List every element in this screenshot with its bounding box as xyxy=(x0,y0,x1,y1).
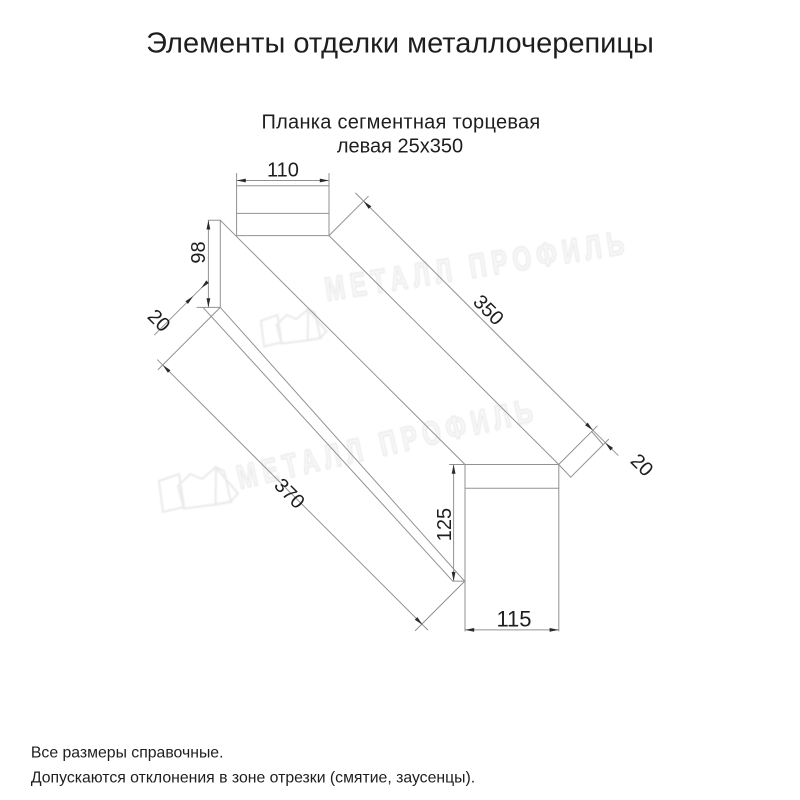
svg-text:110: 110 xyxy=(267,160,299,182)
svg-text:Допускаются отклонения в зоне: Допускаются отклонения в зоне отрезки (с… xyxy=(31,770,475,787)
svg-text:Планка сегментная торцевая: Планка сегментная торцевая xyxy=(261,112,540,134)
svg-text:20: 20 xyxy=(143,305,174,336)
svg-text:20: 20 xyxy=(626,450,657,481)
svg-text:115: 115 xyxy=(496,607,531,632)
svg-text:левая 25х350: левая 25х350 xyxy=(337,136,463,158)
svg-text:Элементы отделки металлочерепи: Элементы отделки металлочерепицы xyxy=(146,28,654,60)
svg-text:350: 350 xyxy=(468,291,507,330)
svg-text:125: 125 xyxy=(434,508,456,541)
svg-text:98: 98 xyxy=(188,241,210,263)
svg-text:Все размеры справочные.: Все размеры справочные. xyxy=(31,745,224,762)
